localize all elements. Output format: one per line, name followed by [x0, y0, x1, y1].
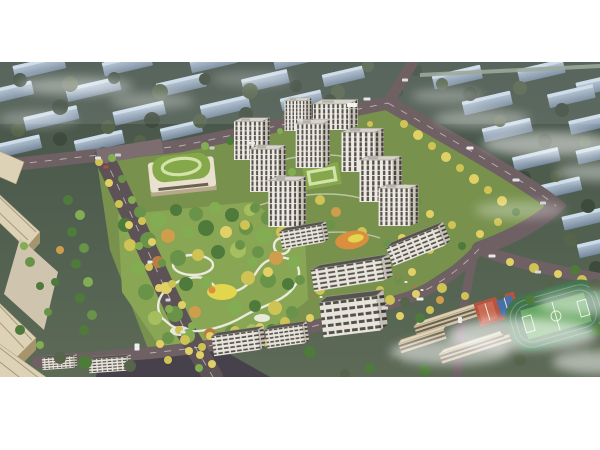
aerial-development-rendering: [0, 0, 600, 450]
rendering-canvas: [0, 0, 600, 450]
